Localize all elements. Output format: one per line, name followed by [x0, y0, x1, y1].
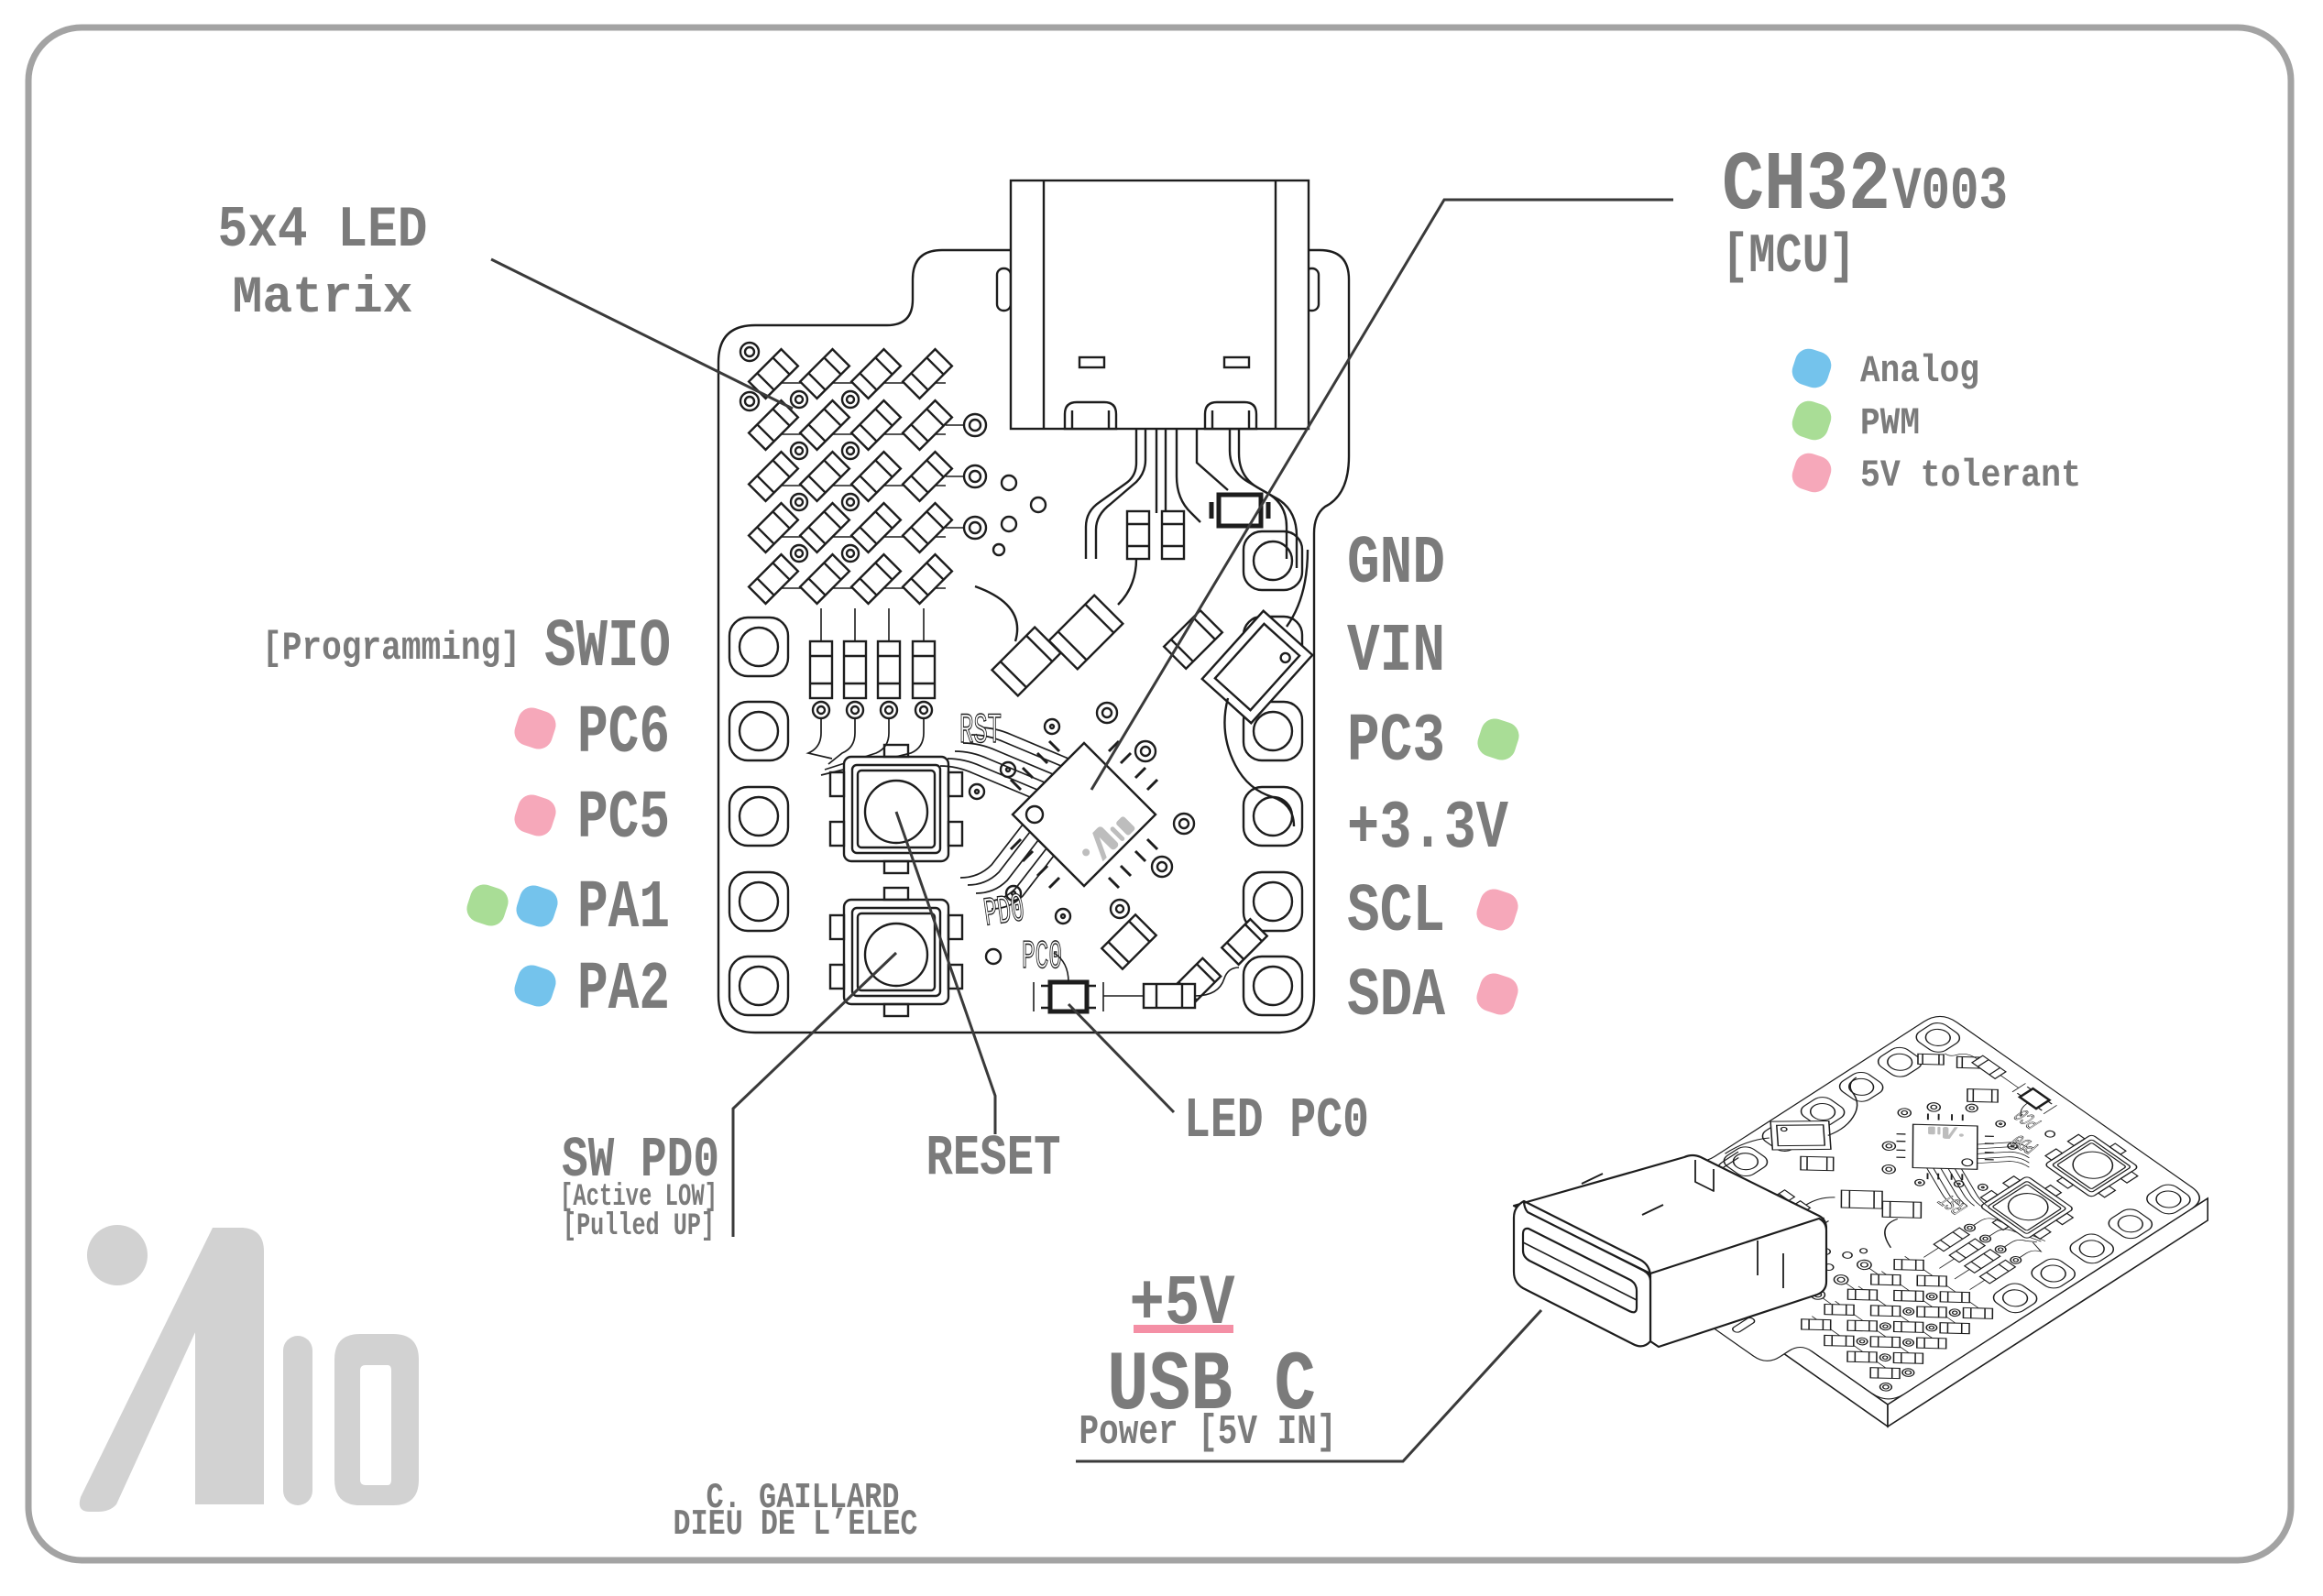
- svg-text:RESET: RESET: [926, 1126, 1061, 1191]
- svg-text:DIEU DE L’ELEC: DIEU DE L’ELEC: [674, 1504, 918, 1545]
- svg-text:+3.3V: +3.3V: [1347, 791, 1508, 868]
- svg-text:[MCU]: [MCU]: [1722, 226, 1856, 289]
- svg-text:SCL: SCL: [1347, 874, 1445, 951]
- svg-text:PC3: PC3: [1347, 704, 1445, 781]
- svg-text:[Programming]: [Programming]: [262, 626, 520, 672]
- svg-text:5V tolerant: 5V tolerant: [1860, 454, 2081, 497]
- svg-text:5x4 LED: 5x4 LED: [218, 198, 428, 263]
- svg-text:PWM: PWM: [1860, 401, 1920, 445]
- svg-text:GND: GND: [1347, 526, 1445, 603]
- svg-text:CH32: CH32: [1722, 139, 1890, 234]
- svg-text:PA2: PA2: [577, 952, 670, 1029]
- svg-text:V003: V003: [1892, 158, 2008, 226]
- svg-text:[Pulled UP]: [Pulled UP]: [563, 1209, 715, 1244]
- svg-text:Power [5V IN]: Power [5V IN]: [1079, 1409, 1337, 1456]
- svg-text:PC6: PC6: [577, 695, 670, 772]
- svg-text:SDA: SDA: [1347, 958, 1445, 1035]
- svg-text:SWIO: SWIO: [544, 609, 671, 686]
- svg-text:Analog: Analog: [1860, 349, 1979, 393]
- svg-text:PC5: PC5: [577, 781, 670, 858]
- svg-text:PA1: PA1: [577, 870, 670, 947]
- svg-text:LED PC0: LED PC0: [1184, 1088, 1369, 1153]
- svg-text:VIN: VIN: [1347, 614, 1445, 691]
- svg-text:Matrix: Matrix: [233, 269, 413, 328]
